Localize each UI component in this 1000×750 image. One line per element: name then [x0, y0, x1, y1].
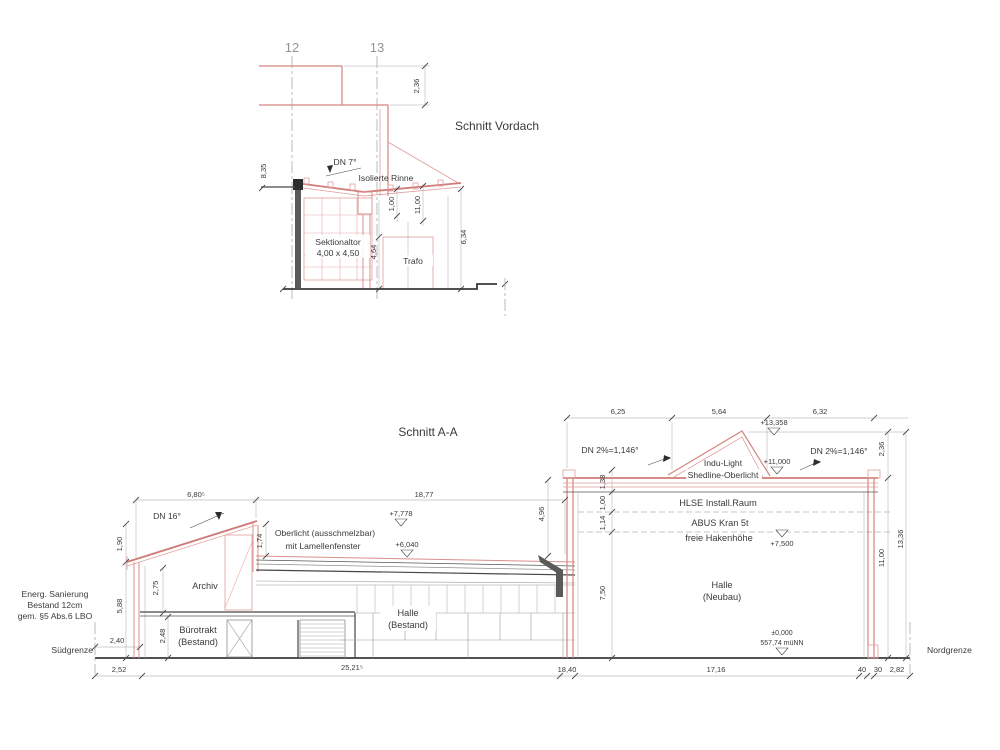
haken-label: freie Hakenhöhe [685, 533, 752, 543]
level-11000: +11,000 [764, 457, 791, 466]
dim-5-64: 5,64 [712, 407, 727, 416]
dim-bottom-40: 40 [858, 665, 866, 674]
dim-1-38: 1,38 [598, 475, 607, 490]
dim-1-90: 1,90 [115, 537, 124, 552]
grid-label-13: 13 [370, 40, 384, 55]
dim-11-00-right: 11,00 [877, 549, 886, 567]
halle-neubau-sub: (Neubau) [703, 592, 741, 602]
level-7778: +7,778 [389, 509, 412, 518]
vordach-section: 12 13 Schnitt Vordach 2,36 8,35 DN 7° Is… [259, 40, 539, 316]
oberlicht-line2: mit Lamellenfenster [286, 541, 361, 551]
buero-cross-box [227, 620, 252, 657]
level-6040: +6,040 [395, 540, 418, 549]
dim-6-80: 6,80⁵ [187, 490, 205, 499]
dim-2-40: 2,40 [110, 636, 125, 645]
vordach-title: Schnitt Vordach [455, 119, 539, 133]
staircase [298, 620, 345, 658]
dim-11-00-vordach: 11,00 [413, 196, 422, 214]
vordach-column [261, 179, 303, 288]
dim-bottom-17-16: 17,16 [707, 665, 726, 674]
drawing-canvas: 12 13 Schnitt Vordach 2,36 8,35 DN 7° Is… [0, 0, 1000, 750]
vordach-ground-line [280, 278, 508, 316]
nordgrenze-label: Nordgrenze [927, 645, 972, 655]
sektionaltor-label: Sektionaltor [315, 237, 361, 247]
dim-4-64: 4,64 [369, 245, 378, 260]
trafo-label: Trafo [403, 256, 423, 266]
dn2-left-label: DN 2%=1,146° [581, 445, 638, 455]
dim-5-88: 5,88 [115, 599, 124, 614]
dim-bottom-18-40: 18,40 [558, 665, 577, 674]
note-line1: Energ. Sanierung [22, 589, 89, 599]
dim-4-96: 4,96 [537, 507, 546, 522]
kran-label: ABUS Kran 5t [691, 518, 749, 528]
hlse-label: HLSE Install.Raum [679, 498, 757, 508]
note-line3: gem. §5 Abs.6 LBO [18, 611, 93, 621]
buerotrakt-sub: (Bestand) [178, 637, 218, 647]
dim-bottom-2-52: 2,52 [112, 665, 127, 674]
note-line2: Bestand 12cm [28, 600, 83, 610]
dim-1-14: 1,14 [598, 516, 607, 531]
isolierte-rinne-label: Isolierte Rinne [359, 173, 414, 183]
dim-2-75: 2,75 [151, 581, 160, 596]
dim-1-00-stack: 1,00 [598, 496, 607, 511]
oberlicht-line1: Oberlicht (ausschmelzbar) [275, 528, 375, 538]
dim-6-25: 6,25 [611, 407, 626, 416]
dim-1-74: 1,74 [255, 534, 264, 549]
dim-18-77: 18,77 [415, 490, 434, 499]
dim-7-50: 7,50 [598, 586, 607, 601]
dim-6-32: 6,32 [813, 407, 828, 416]
indu-light-line2: Shedline-Oberlicht [688, 470, 759, 480]
schnitt-aa-section: Schnitt A-A Energ. Sanierung Bestand 12c… [18, 407, 972, 679]
suedgrenze-label: Südgrenze [51, 645, 93, 655]
dim-2-36-right: 2,36 [877, 442, 886, 457]
dim-bottom-2-82: 2,82 [890, 665, 905, 674]
dim-6-34: 6,34 [459, 230, 468, 245]
level-13358: +13,358 [760, 418, 787, 427]
architectural-drawing-sheet: 12 13 Schnitt Vordach 2,36 8,35 DN 7° Is… [0, 0, 1000, 750]
level-zero-nn: 557,74 müNN [760, 640, 803, 647]
aa-bottom-dimension-chain [92, 673, 913, 679]
indu-light-line1: Indu-Light [704, 458, 743, 468]
halle-bestand-sub: (Bestand) [388, 620, 428, 630]
halle-neubau-label: Halle [712, 580, 733, 590]
dim-13-36: 13,36 [896, 530, 905, 549]
archiv-label: Archiv [192, 581, 218, 591]
dn16-label: DN 16° [153, 511, 181, 521]
dim-1-00: 1,00 [387, 197, 396, 212]
dim-2-48: 2,48 [158, 629, 167, 644]
dim-2-36-vordach: 2,36 [412, 79, 421, 94]
grid-label-12: 12 [285, 40, 299, 55]
dim-bottom-25-21: 25,21⁵ [341, 663, 363, 672]
level-zero: ±0,000 [771, 630, 792, 637]
buerotrakt-label: Bürotrakt [179, 625, 217, 635]
dn7-label: DN 7° [333, 157, 356, 167]
aa-title: Schnitt A-A [398, 425, 457, 439]
dim-8-35: 8,35 [259, 164, 268, 179]
level-7500: +7,500 [770, 539, 793, 548]
dim-bottom-30: 30 [874, 665, 882, 674]
halle-bestand-label: Halle [398, 608, 419, 618]
sektionaltor-size: 4,00 x 4,50 [317, 248, 360, 258]
dn2-right-label: DN 2%=1,146° [810, 446, 867, 456]
